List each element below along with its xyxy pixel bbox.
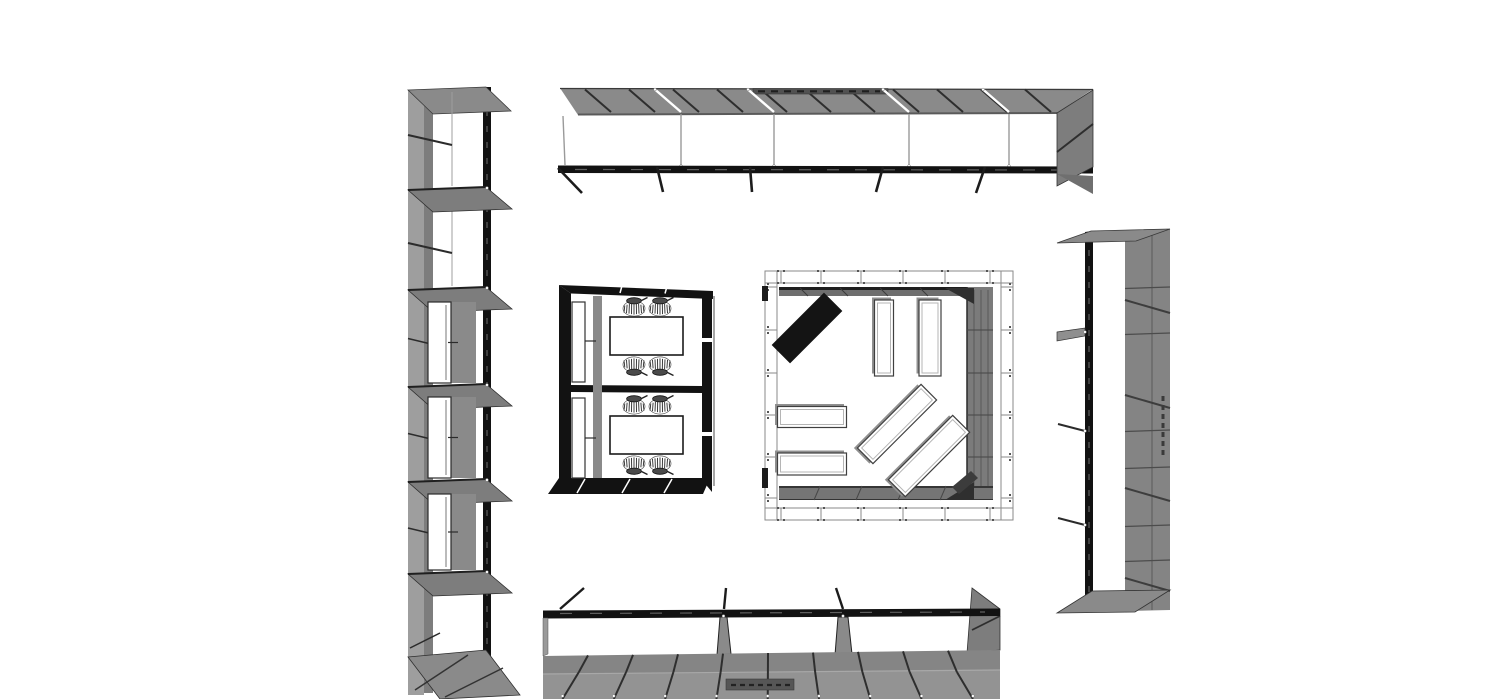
frame-connector-dot [783,270,785,272]
frame-connector-dot [823,270,825,272]
display-room[interactable] [762,270,1013,521]
display-bench[interactable] [917,298,942,377]
booth-right-wall [702,291,712,492]
frame-connector-dot [823,282,825,284]
frame-connector-dot [992,507,994,509]
end-divider [563,116,565,165]
frame-connector-dot [767,326,769,328]
frame-connector-dot [992,519,994,521]
joint-dot [818,695,821,698]
frame-connector-dot [905,519,907,521]
frame-connector-dot [823,507,825,509]
wall-notch [702,432,712,436]
frame-connector-dot [947,282,949,284]
joint-dot [486,479,489,482]
frame-connector-dot [783,519,785,521]
cabinet-door[interactable] [428,397,451,478]
bay-divider-panel [835,617,852,655]
office-chair[interactable] [623,396,648,415]
frame-connector-dot [817,270,819,272]
booth-top-wall [559,285,713,299]
frame-connector-dot [857,519,859,521]
frame-connector-dot [777,282,779,284]
booth-table[interactable] [610,416,683,454]
frame-connector-dot [941,270,943,272]
frame-connector-dot [947,519,949,521]
shelf-row-top[interactable] [558,88,1093,194]
shelf-leg [724,588,726,609]
shelf-leg [836,588,843,609]
frame-connector-dot [899,519,901,521]
office-chair[interactable] [623,456,648,475]
cabinet-door[interactable] [428,302,451,383]
frame-connector-dot [1009,283,1011,285]
frame-connector-dot [905,282,907,284]
frame-connector-dot [817,282,819,284]
shelf-flare [1057,328,1085,341]
joint-dot [1084,331,1087,334]
booth-left-wall [559,285,571,480]
joint-dot [869,695,872,698]
frame-connector-dot [986,282,988,284]
frame-connector-dot [783,507,785,509]
joint-dot [882,88,885,91]
joint-dot [766,695,769,698]
frame-connector-dot [767,375,769,377]
frame-connector-dot [857,270,859,272]
frame-connector-dot [1009,500,1011,502]
frame-connector-dot [1009,411,1011,413]
joint-dot [982,88,985,91]
side-panel [1125,229,1170,611]
frame-connector-dot [783,282,785,284]
joint-dot [842,615,845,618]
frame-connector-dot [905,270,907,272]
top-edge-band [543,609,1000,619]
frame-connector-dot [992,282,994,284]
frame-connector-dot [986,507,988,509]
meeting-booths[interactable] [548,285,714,494]
shelf-row-bottom[interactable] [543,588,1000,699]
shelf-strut [1058,424,1085,431]
end-foot [1057,174,1093,194]
end-panel [967,588,1000,653]
frame-connector-dot [1009,289,1011,291]
frame-connector-dot [777,270,779,272]
frame-connector-dot [899,282,901,284]
frame-connector-dot [1009,459,1011,461]
panel-face [772,293,843,364]
joint-dot [664,695,667,698]
joint-dot [612,695,615,698]
frame-connector-dot [947,270,949,272]
frame-connector-dot [941,282,943,284]
frame-connector-dot [777,507,779,509]
frame-connector-dot [817,519,819,521]
frame-connector-dot [767,332,769,334]
frame-connector-dot [857,507,859,509]
frame-post-mark [762,468,768,488]
joint-dot [561,695,564,698]
frame-connector-dot [899,507,901,509]
joint-dot [486,384,489,387]
joint-dot [654,88,657,91]
joint-dot [486,187,489,190]
joint-dot [486,571,489,574]
joint-dot [722,615,725,618]
end-cap [543,618,548,656]
frame-connector-dot [905,507,907,509]
frame-connector-dot [947,507,949,509]
model-viewport[interactable] [0,0,1500,699]
cabinet-door[interactable] [428,494,451,570]
frame-connector-dot [767,494,769,496]
frame-connector-dot [986,270,988,272]
booth-table[interactable] [610,317,683,355]
booth-divider-wall [571,385,702,393]
shelf-column-right[interactable] [1057,229,1170,613]
frame-connector-dot [899,270,901,272]
office-chair[interactable] [649,456,674,475]
room-right-wall[interactable] [967,287,993,500]
frame-connector-dot [767,417,769,419]
joint-dot [715,695,718,698]
display-bench[interactable] [775,451,847,476]
office-chair[interactable] [623,298,648,317]
frame-connector-dot [1009,326,1011,328]
frame-connector-dot [767,453,769,455]
plan-view-canvas[interactable] [0,0,1500,699]
frame-connector-dot [941,519,943,521]
frame-connector-dot [767,283,769,285]
joint-dot [920,695,923,698]
booth-door[interactable] [572,398,585,478]
joint-dot [1084,430,1087,433]
inner-panel [593,296,602,478]
frame-connector-dot [767,369,769,371]
frame-connector-dot [1009,417,1011,419]
frame-connector-dot [823,519,825,521]
frame-connector-dot [986,519,988,521]
shelf-strut [1058,518,1085,525]
frame-connector-dot [863,519,865,521]
frame-connector-dot [863,270,865,272]
frame-connector-dot [992,270,994,272]
office-chair[interactable] [649,396,674,415]
frame-connector-dot [1009,453,1011,455]
frame-connector-dot [777,519,779,521]
frame-connector-dot [863,507,865,509]
booth-door[interactable] [572,302,585,382]
display-bench[interactable] [872,298,894,377]
frame-connector-dot [817,507,819,509]
wall-notch [702,338,712,342]
frame-connector-dot [767,500,769,502]
frame-connector-dot [1009,375,1011,377]
wall-edge [779,287,975,290]
frame-post-mark [762,286,768,301]
joint-dot [747,88,750,91]
joint-dot [1084,524,1087,527]
joint-dot [486,287,489,290]
bay-divider-panel [717,617,731,655]
frame-connector-dot [1009,494,1011,496]
frame-connector-dot [857,282,859,284]
frame-connector-dot [1009,369,1011,371]
office-chair[interactable] [623,357,648,376]
frame-connector-dot [941,507,943,509]
frame-connector-dot [863,282,865,284]
frame-connector-dot [767,459,769,461]
joint-dot [972,695,975,698]
shelf-leg [560,588,584,609]
display-bench[interactable] [775,404,847,428]
shelf-column-left[interactable] [408,87,520,699]
office-chair[interactable] [649,357,674,376]
display-panel-black[interactable] [772,293,843,364]
office-chair[interactable] [649,298,674,317]
frame-connector-dot [1009,332,1011,334]
frame-connector-dot [767,411,769,413]
